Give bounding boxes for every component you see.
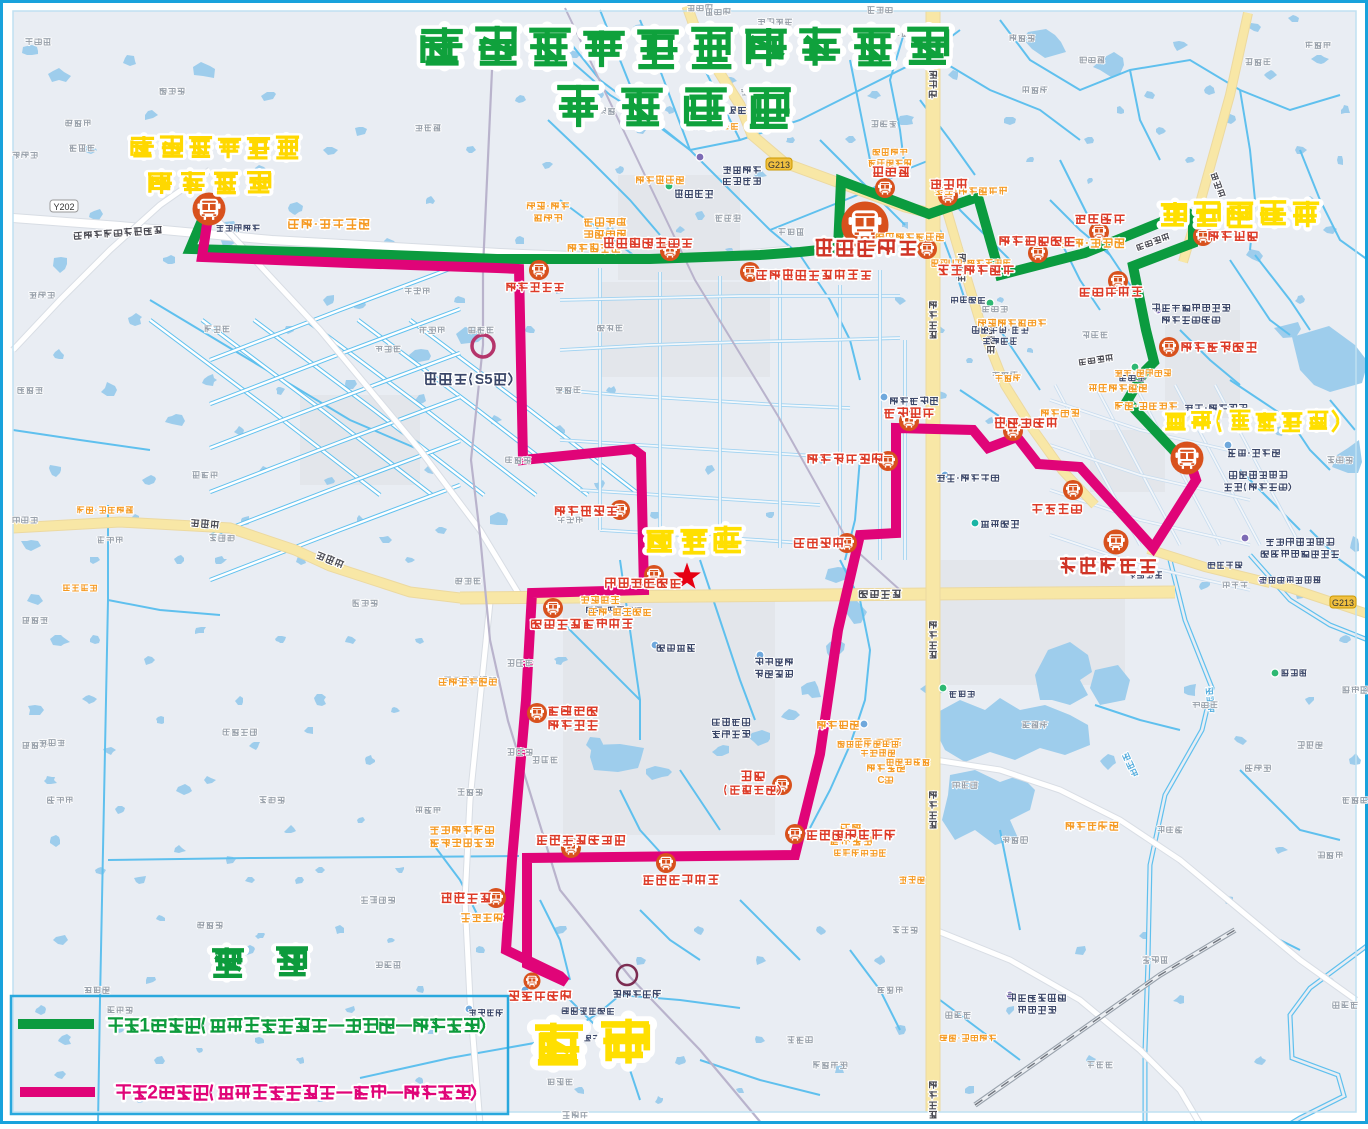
svg-text:C: C — [877, 775, 884, 786]
svg-text:5: 5 — [484, 371, 492, 388]
svg-text:G213: G213 — [1332, 598, 1354, 608]
svg-text:S: S — [475, 371, 485, 388]
svg-text:2: 2 — [147, 1083, 158, 1104]
svg-text:Y202: Y202 — [53, 202, 74, 212]
svg-text:1: 1 — [139, 1016, 150, 1037]
svg-text:G213: G213 — [768, 160, 790, 170]
